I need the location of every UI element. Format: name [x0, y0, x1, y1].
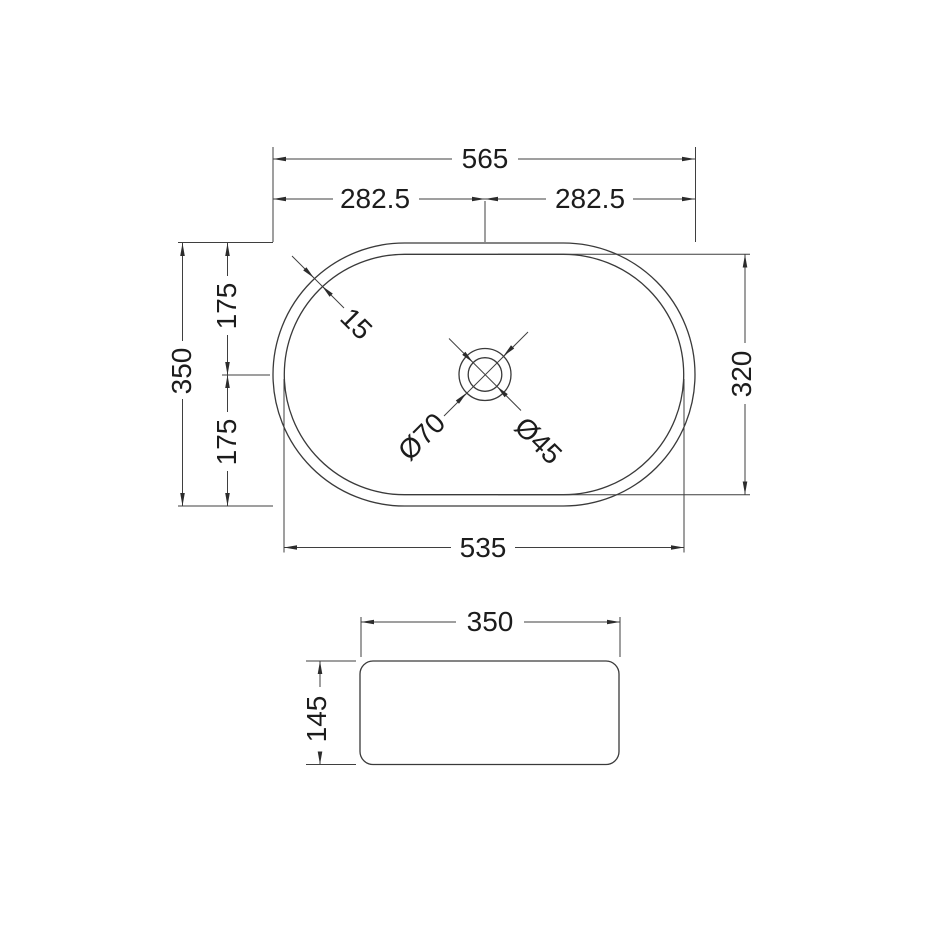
dim-label-175-bottom: 175: [211, 419, 242, 466]
dim-side-width: 350: [361, 606, 620, 657]
dim-label-282-5-left: 282.5: [340, 183, 410, 214]
dim-half-widths: 282.5 282.5: [273, 183, 695, 242]
plan-view: 565 282.5 282.5: [166, 143, 757, 563]
arrowhead: [273, 157, 286, 162]
dim-label-d45: Ø45: [509, 411, 568, 470]
dim-half-depths: 175 175: [211, 243, 270, 506]
arrowhead: [462, 352, 473, 363]
dim-inner-width: 535: [284, 379, 684, 563]
arrowhead: [318, 752, 323, 765]
arrowhead: [607, 620, 620, 625]
dim-label-15: 15: [334, 302, 378, 346]
arrowhead: [456, 393, 467, 404]
dim-label-350: 350: [166, 348, 197, 395]
technical-drawing-page: 565 282.5 282.5: [0, 0, 925, 925]
dim-label-282-5-right: 282.5: [555, 183, 625, 214]
arrowhead: [743, 255, 748, 268]
dim-label-535: 535: [460, 532, 507, 563]
arrowhead: [225, 362, 230, 375]
arrowhead: [682, 157, 695, 162]
arrowhead: [497, 387, 508, 398]
arrowhead: [743, 482, 748, 495]
dim-overall-width: 565: [273, 143, 696, 242]
arrowhead: [682, 197, 695, 202]
dim-rim-thickness: 15: [292, 256, 378, 346]
dim-label-565: 565: [462, 143, 509, 174]
arrowhead: [318, 661, 323, 674]
arrowhead: [273, 197, 286, 202]
dim-side-height: 145: [301, 661, 356, 765]
arrowhead: [180, 493, 185, 506]
arrowhead: [361, 620, 374, 625]
dim-label-175-top: 175: [211, 283, 242, 330]
arrowhead: [503, 345, 514, 356]
basin-technical-drawing: 565 282.5 282.5: [0, 0, 925, 925]
arrowhead: [671, 545, 684, 550]
side-view: 350 145: [301, 606, 620, 765]
basin-outer-rim-outline: [273, 243, 695, 506]
dim-drain-inner: Ø45: [449, 339, 568, 471]
arrowhead: [472, 197, 485, 202]
dim-label-145: 145: [301, 696, 332, 743]
dim-overall-depth: 350: [166, 243, 273, 507]
arrowhead: [180, 243, 185, 256]
basin-side-outline: [360, 661, 619, 765]
arrowhead: [485, 197, 498, 202]
basin-inner-bowl-outline: [284, 254, 683, 494]
arrowhead: [322, 286, 333, 297]
dim-drain-outer: Ø70: [392, 332, 528, 466]
dim-label-320: 320: [726, 351, 757, 398]
arrowhead: [284, 545, 297, 550]
arrowhead: [225, 243, 230, 256]
arrowhead: [225, 375, 230, 388]
arrowhead: [303, 267, 314, 278]
dim-label-side-350: 350: [467, 606, 514, 637]
arrowhead: [225, 493, 230, 506]
dim-label-d70: Ø70: [392, 407, 451, 466]
